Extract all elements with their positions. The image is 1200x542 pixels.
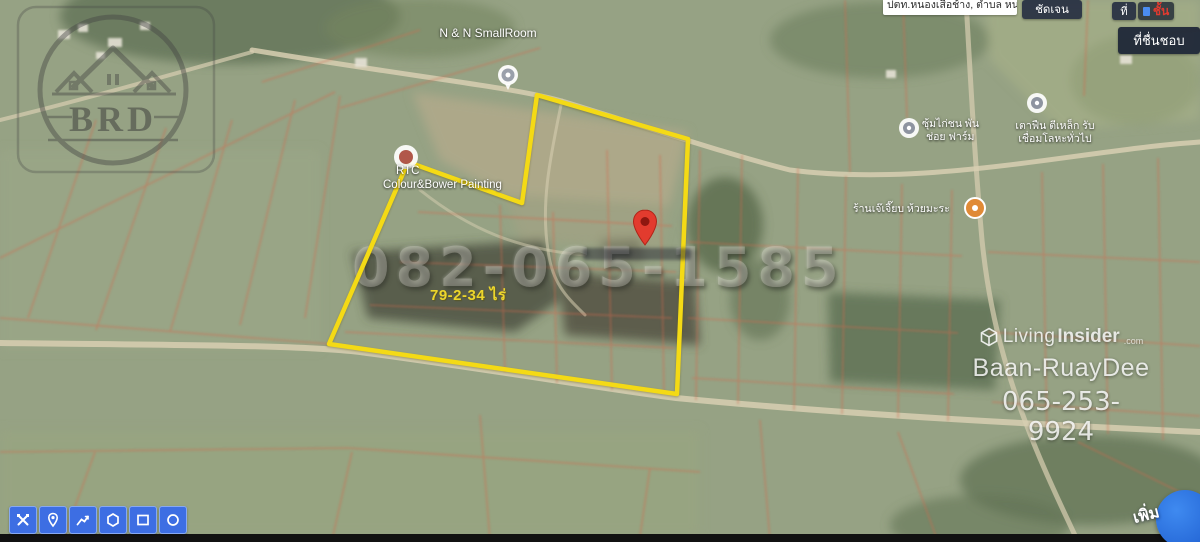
clear-button[interactable]: ชัดเจน bbox=[1022, 0, 1082, 19]
brand-living: Living bbox=[1003, 326, 1056, 348]
marker-tool-button[interactable] bbox=[39, 506, 67, 534]
circle-icon bbox=[165, 512, 181, 528]
polygon-icon bbox=[105, 512, 121, 528]
marker-icon bbox=[45, 512, 61, 528]
polyline-icon bbox=[75, 512, 91, 528]
poi-icon-restaurant[interactable] bbox=[964, 197, 986, 219]
polygon-tool-button[interactable] bbox=[99, 506, 127, 534]
layers-button[interactable]: ชั้น bbox=[1138, 2, 1174, 20]
poi-icon-nn-smallroom[interactable] bbox=[495, 63, 521, 95]
living-insider-watermark: LivingInsider.com Baan-RuayDee 065-253-9… bbox=[972, 326, 1150, 447]
edit-tools-icon bbox=[15, 512, 31, 528]
poi-label-chicken-farm-line2: ช่อย ฟาร์ม bbox=[926, 128, 974, 145]
land-area-label: 79-2-34 ไร่ bbox=[430, 283, 506, 307]
polyline-tool-button[interactable] bbox=[69, 506, 97, 534]
map-app-window: 082-065-1585 N & N SmallRoom RTC Colour&… bbox=[0, 0, 1200, 542]
agent-name: Baan-RuayDee bbox=[972, 354, 1150, 383]
rectangle-tool-button[interactable] bbox=[129, 506, 157, 534]
agent-phone: 065-253-9924 bbox=[972, 387, 1150, 447]
brand-insider: Insider bbox=[1057, 326, 1119, 348]
circle-tool-button[interactable] bbox=[159, 506, 187, 534]
location-text: ปตท.หนองเสือช้าง, ตำบล หนองเสือช้าง อำเภ… bbox=[887, 0, 1017, 13]
layers-label: ชั้น bbox=[1153, 2, 1169, 21]
favorites-button[interactable]: ที่ชื่นชอบ bbox=[1118, 27, 1200, 54]
brd-logo-watermark: BRD bbox=[14, 4, 219, 176]
map-pin[interactable] bbox=[629, 208, 661, 248]
bottom-black-bar bbox=[0, 534, 1200, 542]
poi-label-rtc-line2: Colour&Bower Painting bbox=[383, 179, 502, 191]
rectangle-icon bbox=[135, 512, 151, 528]
edit-tools-button[interactable] bbox=[9, 506, 37, 534]
poi-label-nn-smallroom: N & N SmallRoom bbox=[428, 26, 548, 40]
poi-icon-blacksmith[interactable] bbox=[1026, 92, 1048, 114]
map-label-smudge bbox=[583, 248, 691, 260]
svg-text:BRD: BRD bbox=[69, 99, 157, 139]
poi-label-rtc-line1: RTC bbox=[396, 165, 419, 177]
pin-toggle-button[interactable]: ที่ bbox=[1112, 2, 1136, 20]
layers-icon bbox=[1143, 7, 1150, 16]
brand-domain-suffix: .com bbox=[1124, 336, 1144, 346]
drawing-toolbar bbox=[9, 506, 187, 534]
poi-icon-chicken-farm[interactable] bbox=[898, 117, 920, 139]
cube-logo-icon bbox=[979, 327, 999, 347]
poi-label-restaurant: ร้านเจ๊เจี๊ยบ ห้วยมะระ bbox=[853, 200, 950, 217]
poi-label-blacksmith-line2: เชื่อมโลหะทั่วไป bbox=[1005, 130, 1105, 147]
location-search-result[interactable]: ปตท.หนองเสือช้าง, ตำบล หนองเสือช้าง อำเภ… bbox=[883, 0, 1017, 15]
